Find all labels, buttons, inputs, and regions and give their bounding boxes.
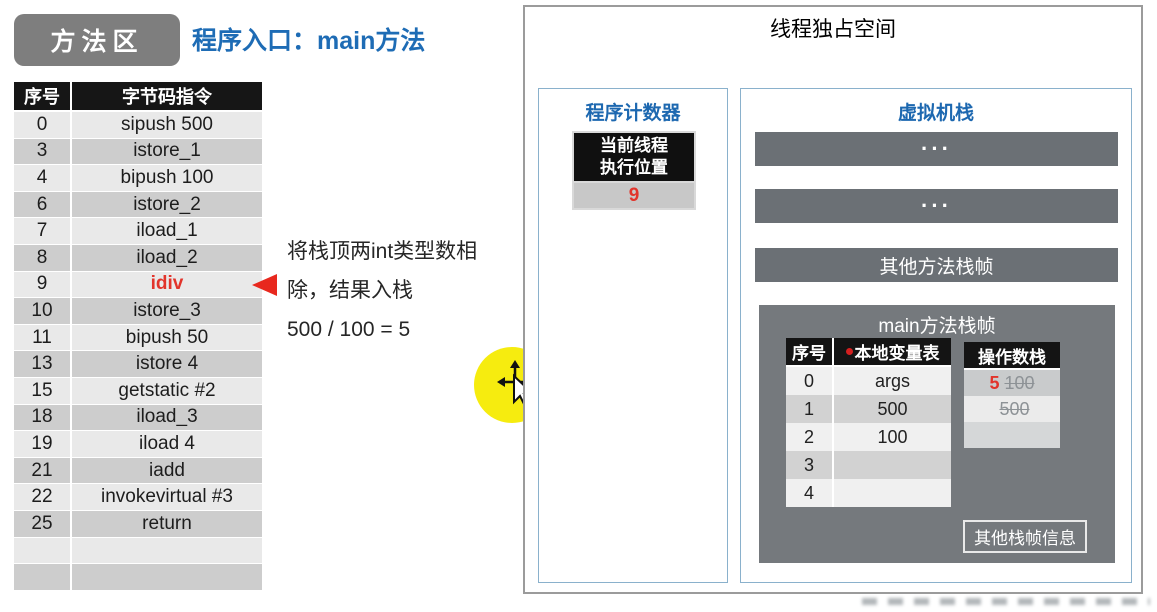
current-instruction-arrow-icon [252,274,277,296]
table-row: 15 getstatic #2 [14,378,262,405]
program-counter-label: 当前线程 执行位置 [572,131,696,183]
annotation-line2: 除，结果入栈 [287,271,517,310]
watermark-illegible [862,598,1150,605]
table-row: 0 sipush 500 [14,112,262,139]
program-counter-box: 程序计数器 当前线程 执行位置 9 [538,88,728,583]
other-method-frames-bar: 其他方法栈帧 [755,248,1118,282]
table-row: 10 istore_3 [14,298,262,325]
thread-space-box: 线程独占空间 程序计数器 当前线程 执行位置 9 虚拟机栈 ··· ··· 其他… [523,5,1143,594]
table-row: 11 bipush 50 [14,325,262,352]
bytecode-table-header: 序号 字节码指令 [14,82,262,110]
stack-frame-ellipsis-bar: ··· [755,132,1118,166]
table-row: 22 invokevirtual #3 [14,484,262,511]
operand-old-value: 100 [1004,373,1034,394]
other-frame-info-box: 其他栈帧信息 [963,520,1087,553]
vm-stack-title: 虚拟机栈 [741,98,1131,125]
table-row: 13 istore 4 [14,351,262,378]
table-row: 8 iload_2 [14,245,262,272]
local-var-row: 1 500 [786,395,951,423]
table-row: 25 return [14,511,262,538]
local-variable-table: 序号 本地变量表 0 args 1 500 [786,338,951,507]
thread-space-title: 线程独占空间 [525,13,1141,43]
red-dot-marker [846,348,853,355]
vm-stack-box: 虚拟机栈 ··· ··· 其他方法栈帧 main方法栈帧 序号 本地变量表 [740,88,1132,583]
program-counter-cell: 当前线程 执行位置 9 [572,131,696,210]
operand-new-value: 5 [989,373,999,394]
local-var-row: 3 [786,451,951,479]
method-area-badge: 方法区 [14,14,180,66]
bytecode-table: 序号 字节码指令 0 sipush 500 3 istore_1 4 bipus… [14,82,262,591]
local-variable-header: 序号 本地变量表 [786,338,951,367]
annotation-line3: 500 / 100 = 5 [287,310,517,349]
table-row-empty [14,538,262,565]
program-counter-title: 程序计数器 [539,98,727,125]
idiv-annotation: 将栈顶两int类型数相 除，结果入栈 500 / 100 = 5 [287,232,517,349]
table-row: 3 istore_1 [14,139,262,166]
local-var-row: 0 args [786,367,951,395]
operand-stack-row-empty [964,422,1060,448]
jvm-slide: 方法区 程序入口：main方法 序号 字节码指令 0 sipush 500 3 … [0,0,1157,612]
main-frame-title: main方法栈帧 [759,311,1115,338]
operand-stack-header: 操作数栈 [964,342,1060,370]
stack-frame-ellipsis-bar: ··· [755,189,1118,223]
table-row: 19 iload 4 [14,431,262,458]
main-method-frame: main方法栈帧 序号 本地变量表 0 args [759,305,1115,563]
table-row: 7 iload_1 [14,218,262,245]
table-row: 21 iadd [14,458,262,485]
annotation-line1: 将栈顶两int类型数相 [287,232,517,271]
header-index: 序号 [14,82,72,110]
operand-stack-row: 500 [964,396,1060,422]
table-row: 6 istore_2 [14,192,262,219]
local-var-row: 4 [786,479,951,507]
table-row: 18 iload_3 [14,405,262,432]
program-counter-value: 9 [572,183,696,210]
operand-old-value: 500 [999,399,1029,420]
program-entry-title: 程序入口：main方法 [192,21,425,57]
local-var-row: 2 100 [786,423,951,451]
table-row-current-idiv: 9 idiv [14,272,262,299]
operand-stack: 操作数栈 5 100 500 [964,342,1060,448]
header-instruction: 字节码指令 [72,82,262,110]
table-row-empty [14,564,262,591]
operand-stack-row: 5 100 [964,370,1060,396]
table-row: 4 bipush 100 [14,165,262,192]
